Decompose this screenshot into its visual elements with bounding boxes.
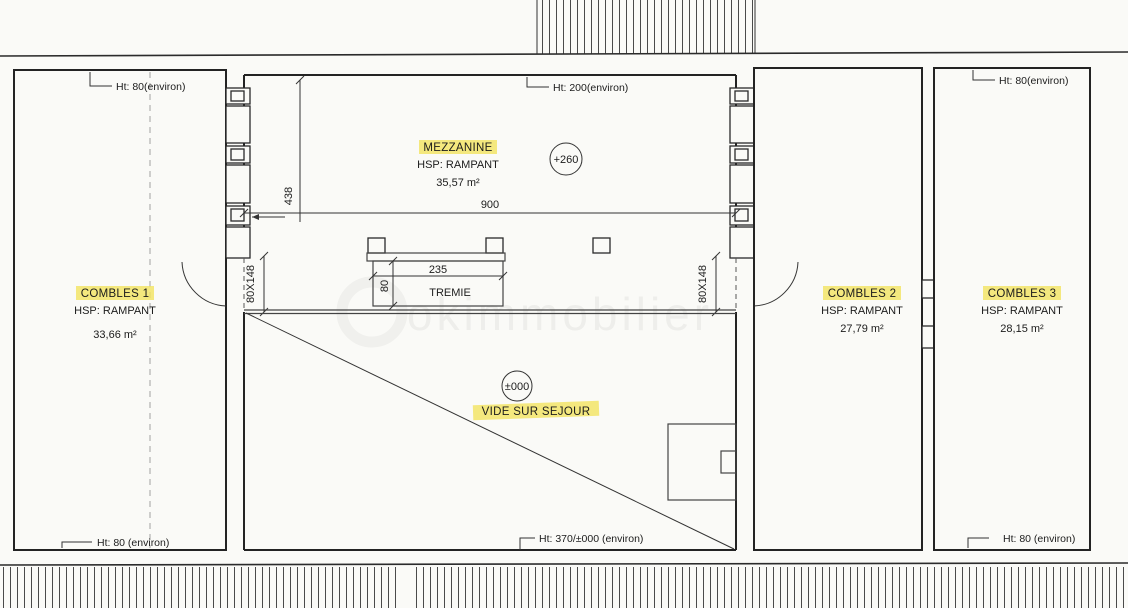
height-label-combles3-top: Ht: 80(environ)	[999, 75, 1068, 87]
vide-label: VIDE SUR SEJOUR	[482, 406, 591, 418]
floor-plan-canvas: okimmobilier Ht: 80(environ) Ht: 80 (env…	[0, 0, 1128, 608]
room-ceiling-combles2: HSP: RAMPANT	[821, 305, 903, 317]
opening-dim-left: 80X148	[245, 252, 268, 316]
post-left	[368, 238, 385, 253]
door-arc-right	[754, 262, 798, 306]
partition-left-cells	[226, 88, 285, 258]
dim-235-label: 235	[429, 264, 447, 276]
level-marker-mezzanine: +260	[550, 143, 582, 175]
tremie-edge-band	[367, 253, 505, 261]
post-mid	[486, 238, 503, 253]
leader-combles3-top	[973, 70, 995, 80]
room-ceiling-combles1: HSP: RAMPANT	[74, 305, 156, 317]
room-ceiling-combles3: HSP: RAMPANT	[981, 305, 1063, 317]
chimney-block	[668, 424, 736, 500]
dim-438-label: 438	[283, 187, 295, 205]
roof-edge-bottom	[0, 563, 1128, 608]
watermark: okimmobilier	[342, 282, 713, 342]
opening-dim-right-label: 80X148	[697, 265, 709, 303]
post-right	[593, 238, 610, 253]
dim-80-label: 80	[379, 280, 391, 292]
roof-edge-top	[0, 0, 1128, 56]
height-label-combles1-bottom: Ht: 80 (environ)	[97, 537, 169, 549]
room-ceiling-mezzanine: HSP: RAMPANT	[417, 159, 499, 171]
room-area-combles2: 27,79 m²	[840, 323, 884, 335]
dim-900-label: 900	[481, 199, 499, 211]
partition-right-cells	[730, 88, 754, 258]
room-combles1: Ht: 80(environ) Ht: 80 (environ) COMBLES…	[14, 70, 226, 550]
room-area-combles3: 28,15 m²	[1000, 323, 1044, 335]
room-name-combles3: COMBLES 3	[988, 288, 1057, 300]
level-mezzanine-label: +260	[554, 154, 579, 166]
leader-vide-bottom	[520, 538, 535, 550]
height-label-combles1-top: Ht: 80(environ)	[116, 81, 185, 93]
opening-dim-left-label: 80X148	[245, 265, 257, 303]
level-marker-main: ±000	[502, 371, 532, 401]
room-combles2: COMBLES 2 HSP: RAMPANT 27,79 m²	[754, 68, 922, 550]
height-label-vide-bottom: Ht: 370/±000 (environ)	[539, 533, 643, 545]
room-name-combles2: COMBLES 2	[828, 288, 897, 300]
leader-combles3-bottom	[968, 538, 989, 548]
pointer-arrow-left	[252, 214, 259, 220]
floor-plan-page: okimmobilier Ht: 80(environ) Ht: 80 (env…	[0, 0, 1128, 608]
door-arc-left	[182, 262, 226, 306]
leader-combles1-bottom	[62, 542, 92, 548]
divider-cells	[922, 280, 934, 348]
vide-diagonal	[246, 313, 734, 549]
leader-mezzanine-top	[527, 77, 549, 87]
leader-combles1-top	[90, 72, 112, 86]
room-name-mezzanine: MEZZANINE	[423, 142, 492, 154]
height-label-mezzanine-top: Ht: 200(environ)	[553, 82, 628, 94]
room-name-combles1: COMBLES 1	[81, 288, 150, 300]
height-label-combles3-bottom: Ht: 80 (environ)	[1003, 533, 1075, 545]
room-area-combles1: 33,66 m²	[93, 329, 137, 341]
room-combles3: Ht: 80(environ) Ht: 80 (environ) COMBLES…	[934, 68, 1090, 550]
tremie-label: TREMIE	[429, 287, 471, 299]
room-area-mezzanine: 35,57 m²	[436, 177, 480, 189]
level-main-label: ±000	[505, 381, 529, 393]
